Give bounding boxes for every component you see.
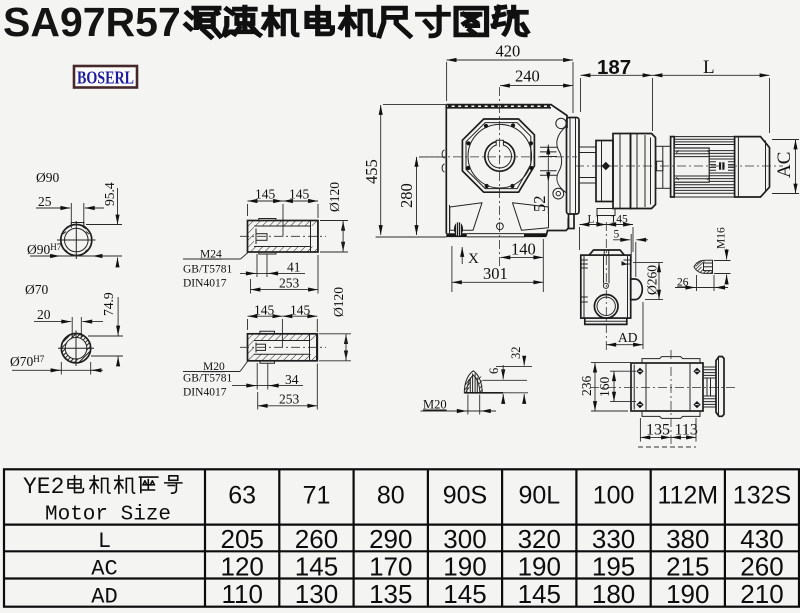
svg-text:145: 145 xyxy=(255,187,276,202)
svg-text:145: 145 xyxy=(289,187,310,202)
svg-text:SA97R57: SA97R57 xyxy=(3,0,181,45)
svg-text:AC: AC xyxy=(91,557,117,582)
svg-text:Ø120: Ø120 xyxy=(331,287,346,317)
svg-text:190: 190 xyxy=(666,579,709,609)
svg-text:5: 5 xyxy=(614,229,620,241)
svg-text:L: L xyxy=(98,529,111,554)
svg-text:41: 41 xyxy=(287,260,301,275)
svg-text:90S: 90S xyxy=(443,482,487,510)
svg-text:320: 320 xyxy=(518,524,561,554)
svg-text:34: 34 xyxy=(285,372,299,387)
svg-text:330: 330 xyxy=(592,524,635,554)
svg-text:113: 113 xyxy=(675,422,698,439)
svg-text:145: 145 xyxy=(518,579,561,609)
svg-text:135: 135 xyxy=(369,579,412,609)
svg-text:GB/T5781: GB/T5781 xyxy=(183,264,232,276)
svg-text:90L: 90L xyxy=(518,482,560,510)
svg-text:145: 145 xyxy=(295,552,338,582)
svg-text:135: 135 xyxy=(646,422,670,439)
svg-text:6: 6 xyxy=(487,368,501,374)
svg-text:AD: AD xyxy=(618,330,638,345)
svg-text:145: 145 xyxy=(254,303,275,318)
svg-text:132S: 132S xyxy=(733,482,791,510)
svg-text:X: X xyxy=(468,251,479,267)
svg-text:Ø90: Ø90 xyxy=(36,170,59,185)
svg-text:100: 100 xyxy=(593,482,635,510)
svg-text:26: 26 xyxy=(677,277,689,289)
svg-text:145: 145 xyxy=(611,214,629,226)
svg-text:253: 253 xyxy=(279,276,300,291)
svg-text:301: 301 xyxy=(483,264,508,283)
svg-text:Ø120: Ø120 xyxy=(327,182,342,212)
svg-text:190: 190 xyxy=(443,552,486,582)
svg-text:260: 260 xyxy=(740,552,783,582)
svg-text:145: 145 xyxy=(443,579,486,609)
svg-text:195: 195 xyxy=(592,552,635,582)
svg-text:180: 180 xyxy=(592,579,635,609)
svg-text:20: 20 xyxy=(37,307,51,322)
svg-text:52: 52 xyxy=(530,196,549,213)
svg-text:L1: L1 xyxy=(588,214,601,226)
svg-text:430: 430 xyxy=(740,524,783,554)
svg-text:160: 160 xyxy=(597,377,612,398)
svg-text:32: 32 xyxy=(509,347,523,360)
svg-text:M20: M20 xyxy=(423,398,447,412)
svg-text:290: 290 xyxy=(369,524,412,554)
svg-text:Ø260: Ø260 xyxy=(645,265,660,295)
svg-text:170: 170 xyxy=(369,552,412,582)
svg-text:112M: 112M xyxy=(657,482,718,510)
svg-text:YE2: YE2 xyxy=(23,474,64,500)
svg-text:145: 145 xyxy=(290,303,311,318)
svg-text:71: 71 xyxy=(303,482,331,510)
svg-text:AC: AC xyxy=(774,152,795,178)
svg-text:L: L xyxy=(703,57,715,78)
svg-text:236: 236 xyxy=(579,376,594,397)
svg-text:63: 63 xyxy=(228,482,256,510)
svg-text:74.9: 74.9 xyxy=(101,292,116,316)
svg-text:420: 420 xyxy=(496,42,521,61)
svg-text:205: 205 xyxy=(221,524,264,554)
svg-text:Motor Size: Motor Size xyxy=(45,504,171,527)
svg-text:380: 380 xyxy=(666,524,709,554)
svg-text:BOSERL: BOSERL xyxy=(77,68,134,88)
svg-text:240: 240 xyxy=(515,67,540,86)
svg-text:253: 253 xyxy=(279,392,300,407)
svg-text:DIN4017: DIN4017 xyxy=(183,278,227,290)
svg-text:DIN4017: DIN4017 xyxy=(183,387,227,399)
svg-text:95.4: 95.4 xyxy=(102,182,117,206)
svg-text:Ø70: Ø70 xyxy=(25,282,48,297)
svg-text:AD: AD xyxy=(91,585,117,610)
svg-text:455: 455 xyxy=(362,159,381,184)
svg-text:280: 280 xyxy=(397,183,416,208)
svg-text:260: 260 xyxy=(295,524,338,554)
svg-text:215: 215 xyxy=(666,552,709,582)
svg-text:140: 140 xyxy=(511,240,536,259)
svg-text:120: 120 xyxy=(221,552,264,582)
svg-text:210: 210 xyxy=(740,579,783,609)
svg-text:130: 130 xyxy=(295,579,338,609)
svg-text:110: 110 xyxy=(221,579,262,609)
svg-text:M16: M16 xyxy=(716,227,728,249)
svg-text:GB/T5781: GB/T5781 xyxy=(183,373,232,385)
svg-text:300: 300 xyxy=(443,524,486,554)
svg-text:80: 80 xyxy=(377,482,405,510)
svg-text:25: 25 xyxy=(38,194,52,209)
svg-text:190: 190 xyxy=(518,552,561,582)
